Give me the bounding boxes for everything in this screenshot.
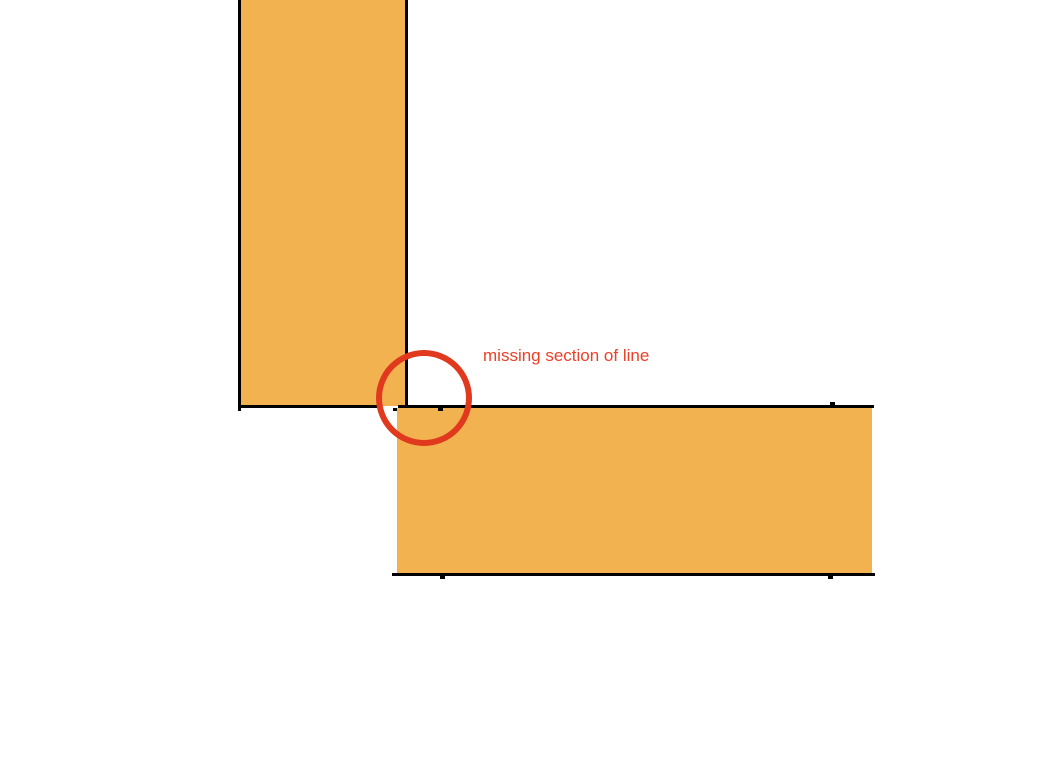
vertical-rectangle-fill (240, 0, 406, 406)
highlight-circle (376, 350, 472, 446)
vertical-rectangle-right-border (405, 0, 408, 405)
horizontal-rectangle-fill (397, 408, 872, 573)
horizontal-rectangle-bottom-border (392, 573, 875, 576)
diagram-canvas: missing section of line (0, 0, 1064, 768)
annotation-label: missing section of line (483, 346, 649, 365)
line-tick-top-right (830, 402, 835, 405)
line-tick-bottom-mid (440, 576, 445, 579)
vertical-rectangle-bottom-border-partial (238, 405, 377, 408)
vertical-rectangle-left-border (238, 0, 241, 411)
line-tick-bottom-right (828, 576, 833, 579)
